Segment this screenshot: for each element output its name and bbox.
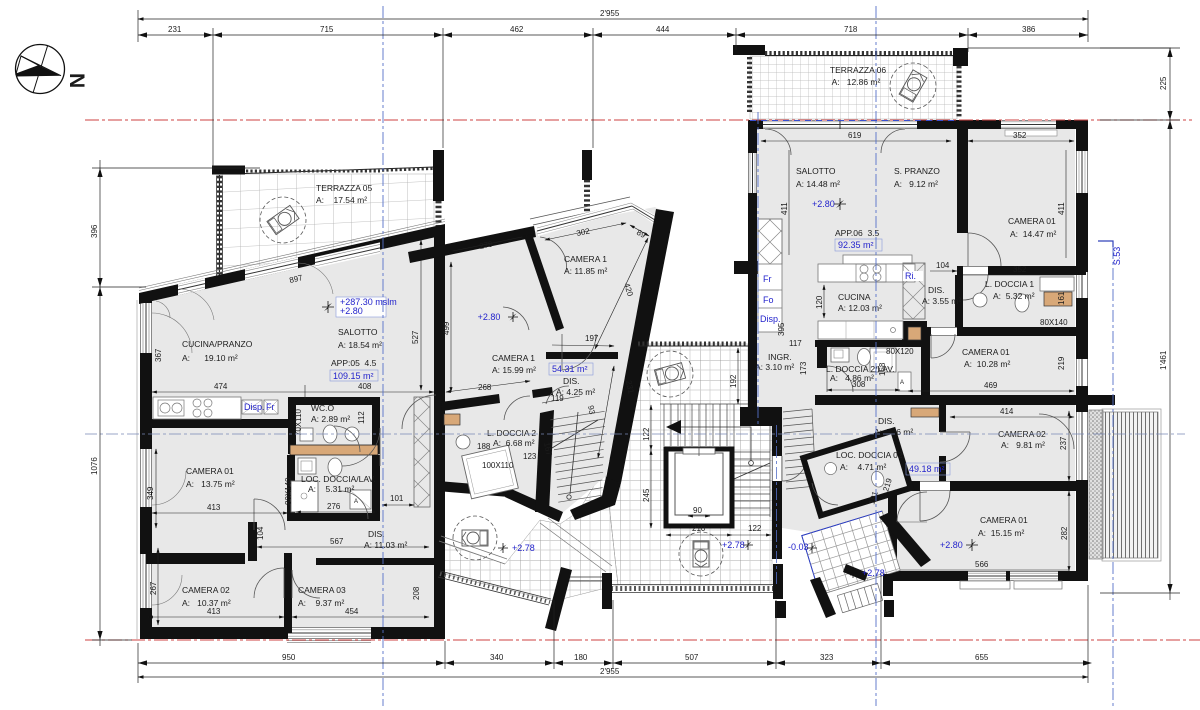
svg-text:TERRAZZA 05: TERRAZZA 05: [316, 183, 372, 193]
svg-text:A: 3.55 m²: A: 3.55 m²: [922, 296, 961, 306]
svg-text:349: 349: [146, 486, 155, 500]
svg-text:499: 499: [442, 321, 451, 335]
svg-text:566: 566: [975, 560, 989, 569]
svg-text:567: 567: [330, 537, 344, 546]
svg-text:413: 413: [207, 607, 221, 616]
svg-text:CAMERA 01: CAMERA 01: [186, 466, 234, 476]
svg-text:408: 408: [358, 382, 372, 391]
svg-text:474: 474: [214, 382, 228, 391]
svg-text:A: 14.48 m²: A: 14.48 m²: [796, 179, 840, 189]
svg-text:A: 6.68 m²: A: 6.68 m²: [493, 438, 535, 448]
svg-text:49.18 m²: 49.18 m²: [909, 464, 945, 474]
svg-text:A: 9.81 m²: A: 9.81 m²: [1001, 440, 1045, 450]
svg-text:A: 17.54 m²: A: 17.54 m²: [316, 195, 367, 205]
svg-text:A: 9.37 m²: A: 9.37 m²: [298, 598, 344, 608]
svg-text:TERRAZZA 06: TERRAZZA 06: [830, 65, 886, 75]
svg-text:414: 414: [1000, 407, 1014, 416]
svg-text:411: 411: [780, 202, 789, 215]
svg-text:109.15 m²: 109.15 m²: [333, 371, 374, 381]
svg-text:104: 104: [936, 261, 950, 270]
svg-text:119: 119: [551, 394, 564, 403]
svg-text:323: 323: [820, 653, 834, 662]
svg-text:70X110: 70X110: [294, 408, 303, 436]
svg-text:655: 655: [975, 653, 989, 662]
svg-text:245: 245: [642, 488, 651, 502]
svg-text:A: 14.47 m²: A: 14.47 m²: [1010, 229, 1056, 239]
svg-text:A: 2.89 m²: A: 2.89 m²: [311, 414, 350, 424]
svg-text:A: 12.86 m²: A: 12.86 m²: [832, 77, 881, 87]
svg-text:352: 352: [1013, 131, 1027, 140]
svg-text:386: 386: [1022, 25, 1036, 34]
svg-text:+2.80: +2.80: [940, 540, 963, 550]
svg-text:CAMERA 1: CAMERA 1: [564, 254, 607, 264]
svg-text:210: 210: [692, 524, 706, 533]
svg-text:101: 101: [390, 494, 404, 503]
svg-text:DIS.: DIS.: [928, 285, 945, 295]
svg-text:+2.80: +2.80: [812, 199, 835, 209]
svg-text:718: 718: [844, 25, 858, 34]
svg-text:197: 197: [585, 334, 599, 343]
svg-text:527: 527: [411, 330, 420, 344]
svg-text:A: A: [354, 499, 358, 505]
svg-text:S. PRANZO: S. PRANZO: [894, 166, 940, 176]
svg-text:A: 13.75 m²: A: 13.75 m²: [186, 479, 235, 489]
svg-text:192: 192: [729, 374, 738, 388]
svg-text:413: 413: [207, 503, 221, 512]
svg-text:619: 619: [848, 131, 862, 140]
svg-text:411: 411: [1057, 202, 1066, 215]
svg-text:LOC. DOCCIA 02: LOC. DOCCIA 02: [836, 450, 903, 460]
svg-text:2'955: 2'955: [600, 9, 620, 18]
svg-text:80X120: 80X120: [886, 347, 914, 356]
svg-text:308: 308: [852, 380, 866, 389]
svg-text:+2.78: +2.78: [512, 543, 535, 553]
svg-text:100X110: 100X110: [482, 461, 514, 470]
svg-text:APP:05 4.5: APP:05 4.5: [331, 358, 377, 368]
svg-text:92.35 m²: 92.35 m²: [838, 240, 874, 250]
svg-text:S.53: S.53: [1112, 247, 1122, 266]
svg-text:352: 352: [1013, 265, 1027, 274]
svg-text:A: 9.12 m²: A: 9.12 m²: [894, 179, 938, 189]
svg-text:180: 180: [574, 653, 588, 662]
svg-text:Ri.: Ri.: [905, 271, 916, 281]
svg-text:SALOTTO: SALOTTO: [338, 327, 378, 337]
svg-text:A: 18.54 m²: A: 18.54 m²: [338, 340, 382, 350]
svg-text:237: 237: [1059, 436, 1068, 450]
svg-text:Disp.: Disp.: [244, 402, 265, 412]
svg-text:188: 188: [477, 442, 491, 451]
svg-text:L. DOCCIA 2: L. DOCCIA 2: [487, 428, 536, 438]
svg-text:A: 5.32 m²: A: 5.32 m²: [993, 291, 1035, 301]
svg-text:+2.80: +2.80: [340, 306, 363, 316]
svg-text:90: 90: [693, 506, 702, 515]
svg-text:+2.80: +2.80: [478, 312, 501, 322]
svg-text:173: 173: [799, 361, 808, 375]
svg-text:INGR.: INGR.: [768, 352, 792, 362]
svg-text:462: 462: [510, 25, 524, 34]
svg-text:LOC. DOCCIA/LAV.: LOC. DOCCIA/LAV.: [301, 474, 376, 484]
svg-text:367: 367: [154, 348, 163, 362]
svg-text:CAMERA 02: CAMERA 02: [182, 585, 230, 595]
svg-text:507: 507: [685, 653, 699, 662]
svg-text:950: 950: [282, 653, 296, 662]
svg-text:268: 268: [478, 383, 492, 392]
svg-text:A: 11.85 m²: A: 11.85 m²: [564, 266, 607, 276]
svg-text:DIS.: DIS.: [878, 416, 895, 426]
svg-text:A: 3.10 m²: A: 3.10 m²: [755, 362, 794, 372]
svg-text:123: 123: [523, 452, 537, 461]
svg-text:112: 112: [357, 411, 366, 424]
svg-text:SALOTTO: SALOTTO: [796, 166, 836, 176]
svg-text:+2.78: +2.78: [862, 568, 885, 578]
svg-text:469: 469: [984, 381, 998, 390]
svg-text:DIS.: DIS.: [563, 376, 580, 386]
svg-text:CUCINA: CUCINA: [838, 292, 871, 302]
svg-text:80X140: 80X140: [284, 477, 293, 505]
svg-text:454: 454: [345, 607, 359, 616]
svg-text:395: 395: [777, 322, 786, 336]
svg-text:225: 225: [1159, 76, 1168, 90]
svg-text:1076: 1076: [90, 457, 99, 475]
svg-text:A: 15.15 m²: A: 15.15 m²: [978, 528, 1024, 538]
svg-text:CAMERA 1: CAMERA 1: [492, 353, 535, 363]
svg-text:158: 158: [878, 362, 887, 376]
svg-text:122: 122: [748, 524, 762, 533]
svg-text:282: 282: [1060, 526, 1069, 540]
svg-text:Fo: Fo: [763, 295, 774, 305]
svg-text:1'461: 1'461: [1159, 350, 1168, 370]
svg-text:A: 4.71 m²: A: 4.71 m²: [840, 462, 886, 472]
svg-text:117: 117: [789, 339, 802, 348]
svg-text:APP.06 3.5: APP.06 3.5: [835, 228, 880, 238]
svg-text:276: 276: [327, 502, 341, 511]
svg-text:340: 340: [490, 653, 504, 662]
svg-text:CAMERA 03: CAMERA 03: [298, 585, 346, 595]
svg-text:N: N: [65, 73, 88, 88]
svg-text:396: 396: [90, 224, 99, 238]
svg-text:120: 120: [815, 295, 824, 309]
svg-text:A: 15.99 m²: A: 15.99 m²: [492, 365, 536, 375]
svg-text:A: 11.03 m²: A: 11.03 m²: [364, 540, 407, 550]
svg-text:208: 208: [412, 586, 421, 600]
svg-text:219: 219: [1057, 356, 1066, 370]
svg-text:Fr: Fr: [763, 274, 772, 284]
svg-text:A: 19.10 m²: A: 19.10 m²: [182, 353, 238, 363]
svg-text:A: 10.28 m²: A: 10.28 m²: [964, 359, 1010, 369]
svg-text:CAMERA 01: CAMERA 01: [962, 347, 1010, 357]
svg-text:WC.O: WC.O: [311, 403, 335, 413]
svg-text:231: 231: [168, 25, 182, 34]
svg-text:Disp.: Disp.: [760, 314, 781, 324]
svg-text:80X140: 80X140: [1040, 318, 1068, 327]
svg-text:104: 104: [256, 526, 265, 540]
svg-text:CAMERA 01: CAMERA 01: [1008, 216, 1056, 226]
svg-text:-0.03: -0.03: [788, 542, 809, 552]
svg-text:A: A: [900, 380, 904, 386]
svg-text:2'955: 2'955: [600, 667, 620, 676]
svg-text:+2.78: +2.78: [722, 540, 745, 550]
svg-text:161: 161: [1057, 291, 1066, 305]
svg-text:DIS.: DIS.: [368, 529, 385, 539]
svg-text:267: 267: [149, 581, 158, 595]
svg-text:CAMERA 01: CAMERA 01: [980, 515, 1028, 525]
svg-text:54.31 m²: 54.31 m²: [552, 364, 588, 374]
svg-text:CUCINA/PRANZO: CUCINA/PRANZO: [182, 339, 253, 349]
svg-text:444: 444: [656, 25, 670, 34]
svg-text:Fr: Fr: [266, 402, 275, 412]
svg-text:A: 5.31 m²: A: 5.31 m²: [308, 484, 354, 494]
svg-text:L. DOCCIA 1: L. DOCCIA 1: [985, 279, 1034, 289]
svg-text:715: 715: [320, 25, 334, 34]
svg-text:A: 12.03 m²: A: 12.03 m²: [838, 303, 882, 313]
